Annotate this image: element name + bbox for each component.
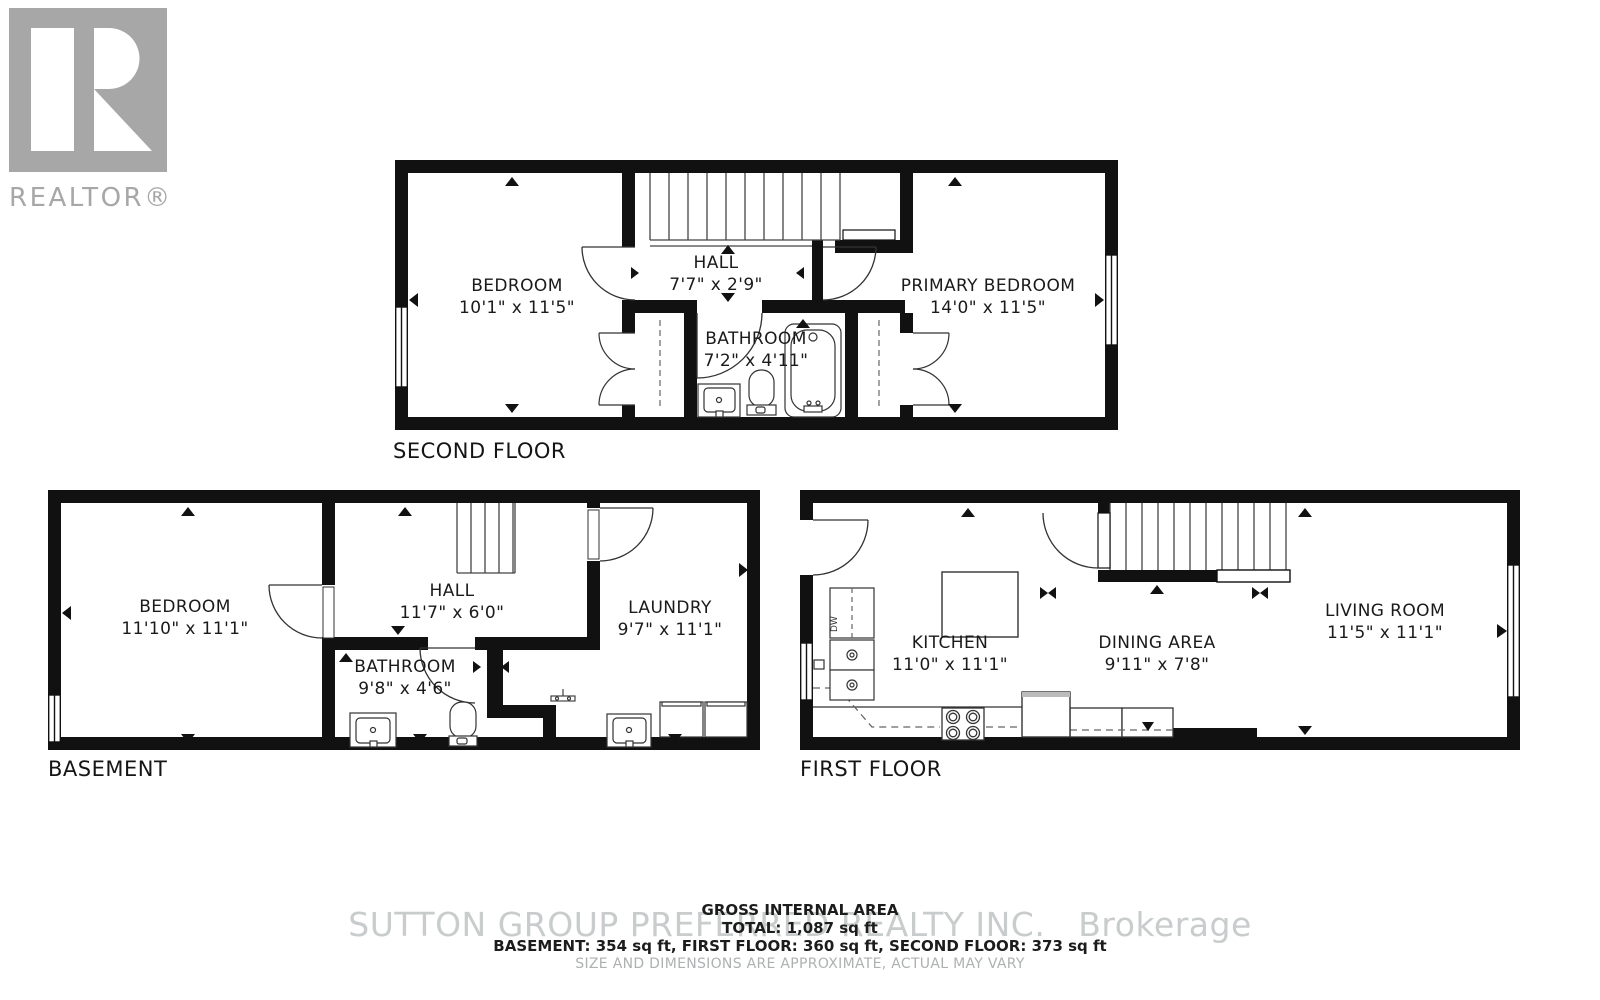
room-dims: 14'0" x 11'5" <box>901 297 1076 319</box>
room-label-kitchen: KITCHEN 11'0" x 11'1" <box>892 632 1008 676</box>
fridge-icon <box>1022 692 1070 737</box>
room-label-living-room: LIVING ROOM 11'5" x 11'1" <box>1325 600 1445 644</box>
faucet-icon <box>551 689 575 701</box>
room-name: DINING AREA <box>1098 632 1215 654</box>
door-arcs <box>813 513 1098 575</box>
room-label-bathroom-2f: BATHROOM 7'2" x 4'11" <box>704 328 809 372</box>
room-label-hall-bsmt: HALL 11'7" x 6'0" <box>400 580 505 624</box>
toilet-icon <box>449 702 477 746</box>
room-dims: 11'5" x 11'1" <box>1325 622 1445 644</box>
room-name: LIVING ROOM <box>1325 600 1445 622</box>
room-label-primary-bedroom: PRIMARY BEDROOM 14'0" x 11'5" <box>901 275 1076 319</box>
room-label-dining-area: DINING AREA 9'11" x 7'8" <box>1098 632 1215 676</box>
room-label-bedroom-bsmt: BEDROOM 11'10" x 11'1" <box>121 596 248 640</box>
realtor-logo-mark <box>9 8 167 172</box>
staircase-icon <box>650 173 840 246</box>
room-dims: 7'2" x 4'11" <box>704 350 809 372</box>
room-name: LAUNDRY <box>618 597 723 619</box>
room-name: HALL <box>400 580 505 602</box>
stair-door-leaf <box>1098 513 1110 568</box>
stove-icon <box>942 708 984 740</box>
dishwasher-label: DW <box>830 616 840 632</box>
room-dims: 10'1" x 11'5" <box>459 297 575 319</box>
second-floor-title: SECOND FLOOR <box>393 439 566 463</box>
laundry-sink-icon <box>607 714 651 747</box>
area-heading: GROSS INTERNAL AREA <box>0 901 1600 919</box>
sink-icon <box>698 384 740 417</box>
room-dims: 9'8" x 4'6" <box>354 678 456 700</box>
room-name: BATHROOM <box>354 656 456 678</box>
staircase-icon <box>1110 503 1286 570</box>
sink-icon <box>350 713 396 747</box>
stair-landing <box>1217 570 1290 582</box>
room-name: BEDROOM <box>121 596 248 618</box>
room-dims: 11'0" x 11'1" <box>892 654 1008 676</box>
closet-door <box>843 230 895 240</box>
room-name: PRIMARY BEDROOM <box>901 275 1076 297</box>
area-summary: GROSS INTERNAL AREA TOTAL: 1,087 sq ft B… <box>0 901 1600 974</box>
first-floor-title: FIRST FLOOR <box>800 757 942 781</box>
kitchen-sink-icon <box>814 640 874 700</box>
room-dims: 11'10" x 11'1" <box>121 618 248 640</box>
area-total: TOTAL: 1,087 sq ft <box>0 919 1600 937</box>
room-name: BEDROOM <box>459 275 575 297</box>
toilet-icon <box>747 370 776 415</box>
floorplan-page: REALTOR® <box>0 0 1600 1000</box>
room-label-laundry: LAUNDRY 9'7" x 11'1" <box>618 597 723 641</box>
room-dims: 7'7" x 2'9" <box>669 274 763 296</box>
realtor-logo: REALTOR® <box>9 8 189 220</box>
room-label-bathroom-bsmt: BATHROOM 9'8" x 4'6" <box>354 656 456 700</box>
room-name: HALL <box>669 252 763 274</box>
room-dims: 9'7" x 11'1" <box>618 619 723 641</box>
area-breakdown: BASEMENT: 354 sq ft, FIRST FLOOR: 360 sq… <box>0 937 1600 955</box>
room-dims: 11'7" x 6'0" <box>400 602 505 624</box>
area-disclaimer: SIZE AND DIMENSIONS ARE APPROXIMATE, ACT… <box>0 955 1600 974</box>
room-name: KITCHEN <box>892 632 1008 654</box>
washer-dryer-icons <box>660 702 747 737</box>
room-label-bedroom-2f: BEDROOM 10'1" x 11'5" <box>459 275 575 319</box>
basement-title: BASEMENT <box>48 757 167 781</box>
room-name: BATHROOM <box>704 328 809 350</box>
kitchen-island <box>942 572 1018 637</box>
realtor-logo-text: REALTOR® <box>9 183 173 213</box>
staircase-icon <box>457 503 515 573</box>
room-dims: 9'11" x 7'8" <box>1098 654 1215 676</box>
window-icon <box>49 695 61 742</box>
room-label-hall-2f: HALL 7'7" x 2'9" <box>669 252 763 296</box>
